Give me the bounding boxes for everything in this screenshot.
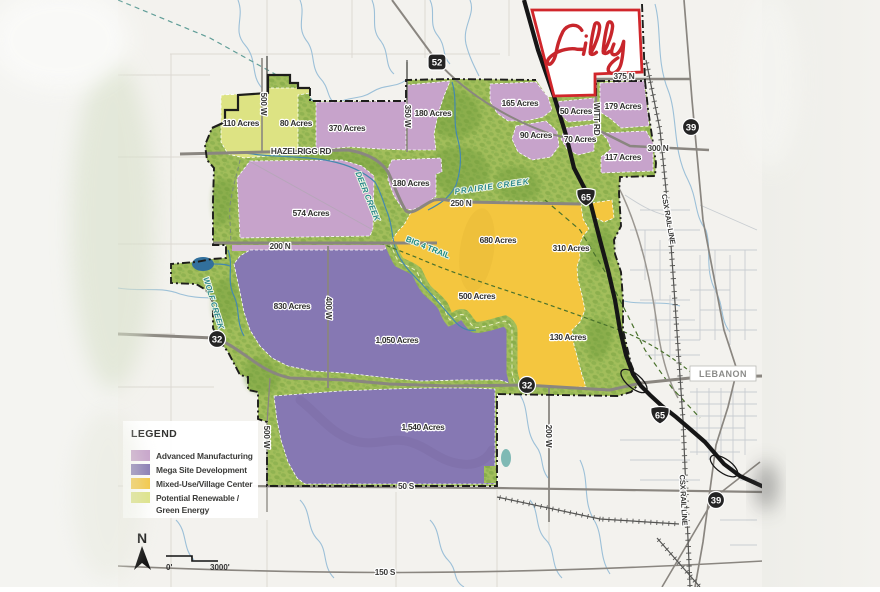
svg-text:500 Acres: 500 Acres bbox=[459, 291, 496, 301]
svg-text:680 Acres: 680 Acres bbox=[480, 235, 517, 245]
svg-text:370 Acres: 370 Acres bbox=[329, 123, 366, 133]
svg-text:250 N: 250 N bbox=[451, 198, 472, 208]
svg-text:90 Acres: 90 Acres bbox=[520, 130, 553, 140]
svg-text:500 W: 500 W bbox=[262, 426, 272, 449]
svg-text:65: 65 bbox=[655, 411, 665, 421]
svg-text:3000': 3000' bbox=[210, 563, 230, 572]
svg-text:Advanced Manufacturing: Advanced Manufacturing bbox=[156, 451, 253, 461]
svg-text:110 Acres: 110 Acres bbox=[223, 118, 260, 128]
svg-text:830 Acres: 830 Acres bbox=[274, 301, 311, 311]
svg-text:117 Acres: 117 Acres bbox=[605, 152, 642, 162]
svg-text:Mega Site Development: Mega Site Development bbox=[156, 465, 247, 475]
svg-text:Potential Renewable /: Potential Renewable / bbox=[156, 493, 240, 503]
svg-text:179 Acres: 179 Acres bbox=[605, 101, 642, 111]
svg-text:39: 39 bbox=[686, 123, 697, 134]
svg-text:0': 0' bbox=[166, 563, 172, 572]
svg-text:350 W: 350 W bbox=[403, 105, 413, 128]
svg-text:LEBANON: LEBANON bbox=[699, 369, 747, 379]
svg-text:50 S: 50 S bbox=[398, 481, 415, 491]
svg-text:500 W: 500 W bbox=[259, 93, 269, 116]
svg-text:200 N: 200 N bbox=[270, 241, 291, 251]
svg-text:180 Acres: 180 Acres bbox=[415, 108, 452, 118]
svg-text:39: 39 bbox=[711, 496, 722, 507]
svg-text:80 Acres: 80 Acres bbox=[280, 118, 313, 128]
svg-text:400 W: 400 W bbox=[324, 297, 334, 320]
svg-text:574 Acres: 574 Acres bbox=[293, 208, 330, 218]
svg-text:375 N: 375 N bbox=[614, 71, 635, 81]
svg-text:LEGEND: LEGEND bbox=[131, 428, 177, 440]
svg-text:130 Acres: 130 Acres bbox=[550, 332, 587, 342]
svg-text:310 Acres: 310 Acres bbox=[553, 243, 590, 253]
svg-text:50 Acres: 50 Acres bbox=[560, 106, 593, 116]
svg-text:300 N: 300 N bbox=[648, 143, 669, 153]
svg-text:52: 52 bbox=[432, 58, 443, 69]
svg-text:32: 32 bbox=[522, 381, 533, 392]
svg-text:65: 65 bbox=[581, 193, 591, 203]
svg-text:HAZELRIGG RD: HAZELRIGG RD bbox=[271, 146, 331, 156]
svg-text:150 S: 150 S bbox=[375, 567, 396, 577]
svg-text:Mixed-Use/Village Center: Mixed-Use/Village Center bbox=[156, 479, 253, 489]
svg-text:180 Acres: 180 Acres bbox=[393, 178, 430, 188]
svg-text:Green Energy: Green Energy bbox=[156, 505, 210, 515]
svg-text:1,540 Acres: 1,540 Acres bbox=[401, 422, 445, 432]
svg-text:1,050 Acres: 1,050 Acres bbox=[375, 335, 419, 345]
svg-text:32: 32 bbox=[212, 335, 223, 346]
svg-text:200 W: 200 W bbox=[544, 425, 554, 448]
svg-text:WITT RD: WITT RD bbox=[592, 103, 602, 136]
svg-text:165 Acres: 165 Acres bbox=[502, 98, 539, 108]
svg-text:70 Acres: 70 Acres bbox=[564, 134, 597, 144]
